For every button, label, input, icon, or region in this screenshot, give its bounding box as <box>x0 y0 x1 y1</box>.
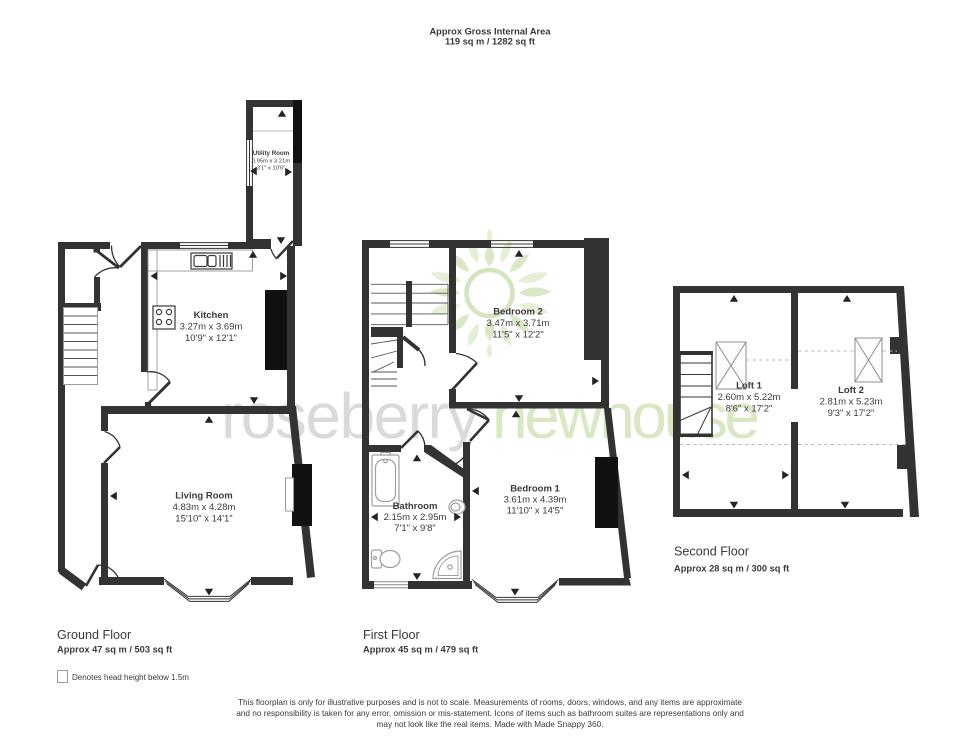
svg-text:3.27m x 3.69m: 3.27m x 3.69m <box>180 322 243 333</box>
svg-text:Ground Floor: Ground Floor <box>57 628 131 642</box>
svg-text:8'6" x 17'2": 8'6" x 17'2" <box>726 404 773 415</box>
svg-text:Approx 47 sq m / 503 sq ft: Approx 47 sq m / 503 sq ft <box>57 645 172 655</box>
svg-text:Bedroom 2: Bedroom 2 <box>493 307 543 318</box>
svg-text:4.83m x 4.28m: 4.83m x 4.28m <box>173 502 236 513</box>
svg-text:11'10" x 14'5": 11'10" x 14'5" <box>507 506 564 517</box>
svg-text:roseberry: roseberry <box>221 380 479 452</box>
svg-text:Denotes head height below 1.5m: Denotes head height below 1.5m <box>72 673 189 682</box>
svg-text:10'9" x 12'1": 10'9" x 12'1" <box>185 333 237 344</box>
svg-text:0.95m x 3.21m: 0.95m x 3.21m <box>252 159 291 165</box>
svg-text:and no responsibility is taken: and no responsibility is taken for any e… <box>236 709 744 718</box>
svg-text:Approx Gross Internal Area: Approx Gross Internal Area <box>429 26 551 36</box>
svg-text:Bedroom 1: Bedroom 1 <box>510 484 560 495</box>
svg-text:Approx 28 sq m / 300 sq ft: Approx 28 sq m / 300 sq ft <box>674 564 789 574</box>
svg-text:First Floor: First Floor <box>363 628 420 642</box>
svg-text:Loft 1: Loft 1 <box>736 381 763 392</box>
svg-text:3'1" x 10'6": 3'1" x 10'6" <box>257 166 286 172</box>
svg-text:Bathroom: Bathroom <box>393 501 438 512</box>
svg-text:9'3" x 17'2": 9'3" x 17'2" <box>828 408 875 419</box>
svg-text:Second Floor: Second Floor <box>674 545 749 559</box>
svg-text:2.15m x 2.95m: 2.15m x 2.95m <box>384 512 447 523</box>
svg-text:3.47m x 3.71m: 3.47m x 3.71m <box>487 318 550 329</box>
svg-text:Living Room: Living Room <box>175 491 233 502</box>
svg-text:15'10" x 14'1": 15'10" x 14'1" <box>175 514 232 525</box>
svg-text:7'1" x 9'8": 7'1" x 9'8" <box>394 523 436 534</box>
svg-text:Utility Room: Utility Room <box>253 150 290 157</box>
svg-text:2.81m x 5.23m: 2.81m x 5.23m <box>820 397 883 408</box>
svg-text:Approx 45 sq m / 479 sq ft: Approx 45 sq m / 479 sq ft <box>363 645 478 655</box>
svg-text:newhouse: newhouse <box>492 380 757 452</box>
svg-text:2.60m x 5.22m: 2.60m x 5.22m <box>718 392 781 403</box>
svg-text:This floorplan is only for ill: This floorplan is only for illustrative … <box>238 698 742 707</box>
svg-text:3.61m x 4.39m: 3.61m x 4.39m <box>504 495 567 506</box>
svg-text:119 sq m / 1282 sq ft: 119 sq m / 1282 sq ft <box>445 37 535 47</box>
svg-text:Loft 2: Loft 2 <box>838 385 864 396</box>
svg-text:11'5" x 12'2": 11'5" x 12'2" <box>492 330 543 341</box>
svg-text:may not look like the real ite: may not look like the real items. Made w… <box>377 720 604 729</box>
svg-text:Kitchen: Kitchen <box>194 310 229 321</box>
